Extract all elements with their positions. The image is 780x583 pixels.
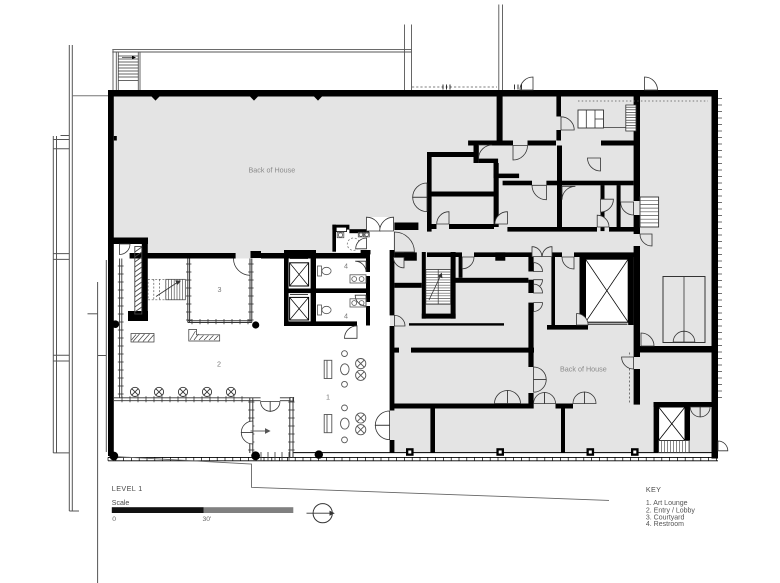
svg-text:30': 30' <box>203 516 212 523</box>
svg-text:Back of House: Back of House <box>249 166 296 175</box>
svg-text:KEY: KEY <box>646 485 661 494</box>
svg-text:Back of House: Back of House <box>560 365 607 374</box>
svg-text:Scale: Scale <box>112 500 130 507</box>
svg-text:2: 2 <box>217 360 221 369</box>
svg-text:4. Restroom: 4. Restroom <box>646 521 684 528</box>
svg-text:1. Art Lounge: 1. Art Lounge <box>646 500 688 507</box>
svg-text:3: 3 <box>218 285 222 294</box>
svg-text:LEVEL 1: LEVEL 1 <box>112 484 143 493</box>
svg-text:4: 4 <box>344 312 348 321</box>
svg-text:4: 4 <box>344 262 348 271</box>
svg-text:1: 1 <box>326 393 330 402</box>
svg-text:0: 0 <box>112 516 116 523</box>
